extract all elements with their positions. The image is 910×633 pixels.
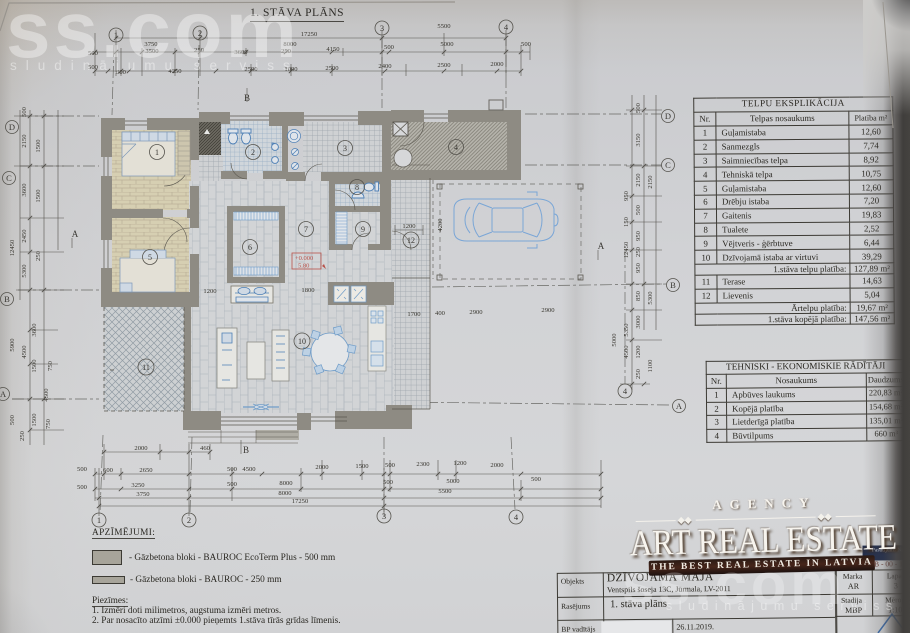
svg-text:250: 250 xyxy=(635,246,642,257)
svg-text:8: 8 xyxy=(355,183,359,192)
svg-text:C: C xyxy=(6,173,12,183)
svg-text:B: B xyxy=(244,93,250,103)
svg-text:6: 6 xyxy=(248,243,252,252)
svg-text:2400: 2400 xyxy=(378,63,392,70)
svg-text:1500: 1500 xyxy=(35,139,42,153)
svg-text:7: 7 xyxy=(304,225,308,234)
svg-text:2500: 2500 xyxy=(437,62,451,69)
svg-text:4500: 4500 xyxy=(623,345,630,359)
svg-text:2000: 2000 xyxy=(134,445,148,452)
svg-text:500: 500 xyxy=(385,462,396,469)
svg-text:2000: 2000 xyxy=(490,61,504,68)
svg-text:4200: 4200 xyxy=(437,218,444,232)
svg-text:5000: 5000 xyxy=(440,41,454,48)
svg-text:5350: 5350 xyxy=(623,323,630,337)
svg-text:1800: 1800 xyxy=(301,287,315,294)
svg-text:500: 500 xyxy=(635,102,642,113)
svg-text:3: 3 xyxy=(343,144,347,153)
svg-text:D: D xyxy=(665,111,671,121)
svg-text:3600: 3600 xyxy=(21,183,28,197)
svg-text:A: A xyxy=(72,229,79,239)
svg-text:1: 1 xyxy=(155,148,159,157)
svg-text:1500: 1500 xyxy=(31,359,38,373)
svg-text:D: D xyxy=(9,122,15,132)
svg-text:A: A xyxy=(676,401,683,411)
svg-text:B: B xyxy=(243,445,249,455)
svg-text:950: 950 xyxy=(635,262,642,273)
svg-text:5900: 5900 xyxy=(9,338,16,352)
svg-text:950: 950 xyxy=(635,230,642,241)
svg-text:460: 460 xyxy=(200,445,211,452)
svg-text:1200: 1200 xyxy=(453,460,467,467)
svg-text:250: 250 xyxy=(35,250,42,261)
svg-text:500: 500 xyxy=(21,106,28,117)
svg-text:+0.000: +0.000 xyxy=(295,255,313,262)
svg-text:2150: 2150 xyxy=(21,134,28,148)
svg-text:B: B xyxy=(670,280,676,290)
svg-text:1200: 1200 xyxy=(203,288,217,295)
svg-text:2500: 2500 xyxy=(325,65,339,72)
svg-text:600: 600 xyxy=(103,467,114,474)
svg-text:2: 2 xyxy=(251,148,255,157)
svg-text:2150: 2150 xyxy=(647,175,654,189)
svg-text:3150: 3150 xyxy=(635,133,642,147)
svg-text:5500: 5500 xyxy=(438,488,452,495)
svg-text:A: A xyxy=(598,241,605,251)
svg-text:5000: 5000 xyxy=(446,478,460,485)
svg-text:3000: 3000 xyxy=(635,315,642,329)
svg-text:4: 4 xyxy=(454,143,458,152)
svg-text:4500: 4500 xyxy=(242,466,256,473)
svg-text:5.80: 5.80 xyxy=(298,263,309,270)
svg-text:2150: 2150 xyxy=(635,173,642,187)
svg-text:400: 400 xyxy=(435,310,446,317)
svg-text:3250: 3250 xyxy=(131,482,145,489)
svg-text:A: A xyxy=(0,389,7,399)
svg-text:12450: 12450 xyxy=(9,239,16,256)
svg-text:1700: 1700 xyxy=(407,311,421,318)
svg-text:750: 750 xyxy=(45,418,52,429)
svg-text:4500: 4500 xyxy=(21,345,28,359)
svg-text:1200: 1200 xyxy=(402,223,416,230)
svg-text:2000: 2000 xyxy=(315,464,329,471)
svg-text:2000: 2000 xyxy=(490,462,504,469)
svg-text:500: 500 xyxy=(521,41,532,48)
svg-text:12450: 12450 xyxy=(623,241,630,258)
svg-text:4: 4 xyxy=(514,512,519,522)
svg-text:500: 500 xyxy=(77,484,88,491)
svg-text:3600: 3600 xyxy=(31,323,38,337)
svg-text:500: 500 xyxy=(227,481,238,488)
svg-text:1500: 1500 xyxy=(35,189,42,203)
svg-text:1200: 1200 xyxy=(635,345,642,359)
svg-text:1500: 1500 xyxy=(31,413,38,427)
svg-text:250: 250 xyxy=(19,430,26,441)
svg-text:500: 500 xyxy=(227,466,238,473)
svg-text:5300: 5300 xyxy=(21,264,28,278)
svg-text:150: 150 xyxy=(623,216,630,227)
svg-text:2: 2 xyxy=(187,515,191,525)
svg-text:5: 5 xyxy=(148,253,152,262)
svg-text:8000: 8000 xyxy=(279,480,293,487)
svg-text:250: 250 xyxy=(635,368,642,379)
svg-text:950: 950 xyxy=(623,190,630,201)
svg-text:1: 1 xyxy=(97,515,101,525)
svg-text:1100: 1100 xyxy=(647,359,654,373)
svg-text:4: 4 xyxy=(623,386,628,396)
svg-text:2300: 2300 xyxy=(416,461,430,468)
svg-text:8000: 8000 xyxy=(278,490,292,497)
svg-text:5300: 5300 xyxy=(647,291,654,305)
svg-text:3750: 3750 xyxy=(136,491,150,498)
svg-text:2650: 2650 xyxy=(139,467,153,474)
svg-text:2450: 2450 xyxy=(21,229,28,243)
svg-text:850: 850 xyxy=(635,290,642,301)
svg-text:500: 500 xyxy=(635,204,642,215)
svg-text:2900: 2900 xyxy=(469,309,483,316)
svg-text:9: 9 xyxy=(361,225,365,234)
svg-text:4500: 4500 xyxy=(43,388,50,402)
svg-text:C: C xyxy=(665,160,671,170)
svg-text:10: 10 xyxy=(298,337,306,346)
svg-text:500: 500 xyxy=(383,479,394,486)
svg-text:500: 500 xyxy=(9,414,16,425)
svg-text:500: 500 xyxy=(384,44,395,51)
svg-text:4150: 4150 xyxy=(326,46,340,53)
svg-text:500: 500 xyxy=(77,466,88,473)
svg-text:500: 500 xyxy=(531,476,542,483)
svg-text:3: 3 xyxy=(382,511,386,521)
svg-text:750: 750 xyxy=(47,360,54,371)
svg-text:11: 11 xyxy=(142,363,150,372)
svg-text:2900: 2900 xyxy=(541,307,555,314)
svg-text:5000: 5000 xyxy=(611,333,618,347)
svg-text:17250: 17250 xyxy=(292,498,309,505)
svg-text:B: B xyxy=(4,294,10,304)
svg-text:12: 12 xyxy=(407,236,415,245)
svg-text:1500: 1500 xyxy=(355,463,369,470)
